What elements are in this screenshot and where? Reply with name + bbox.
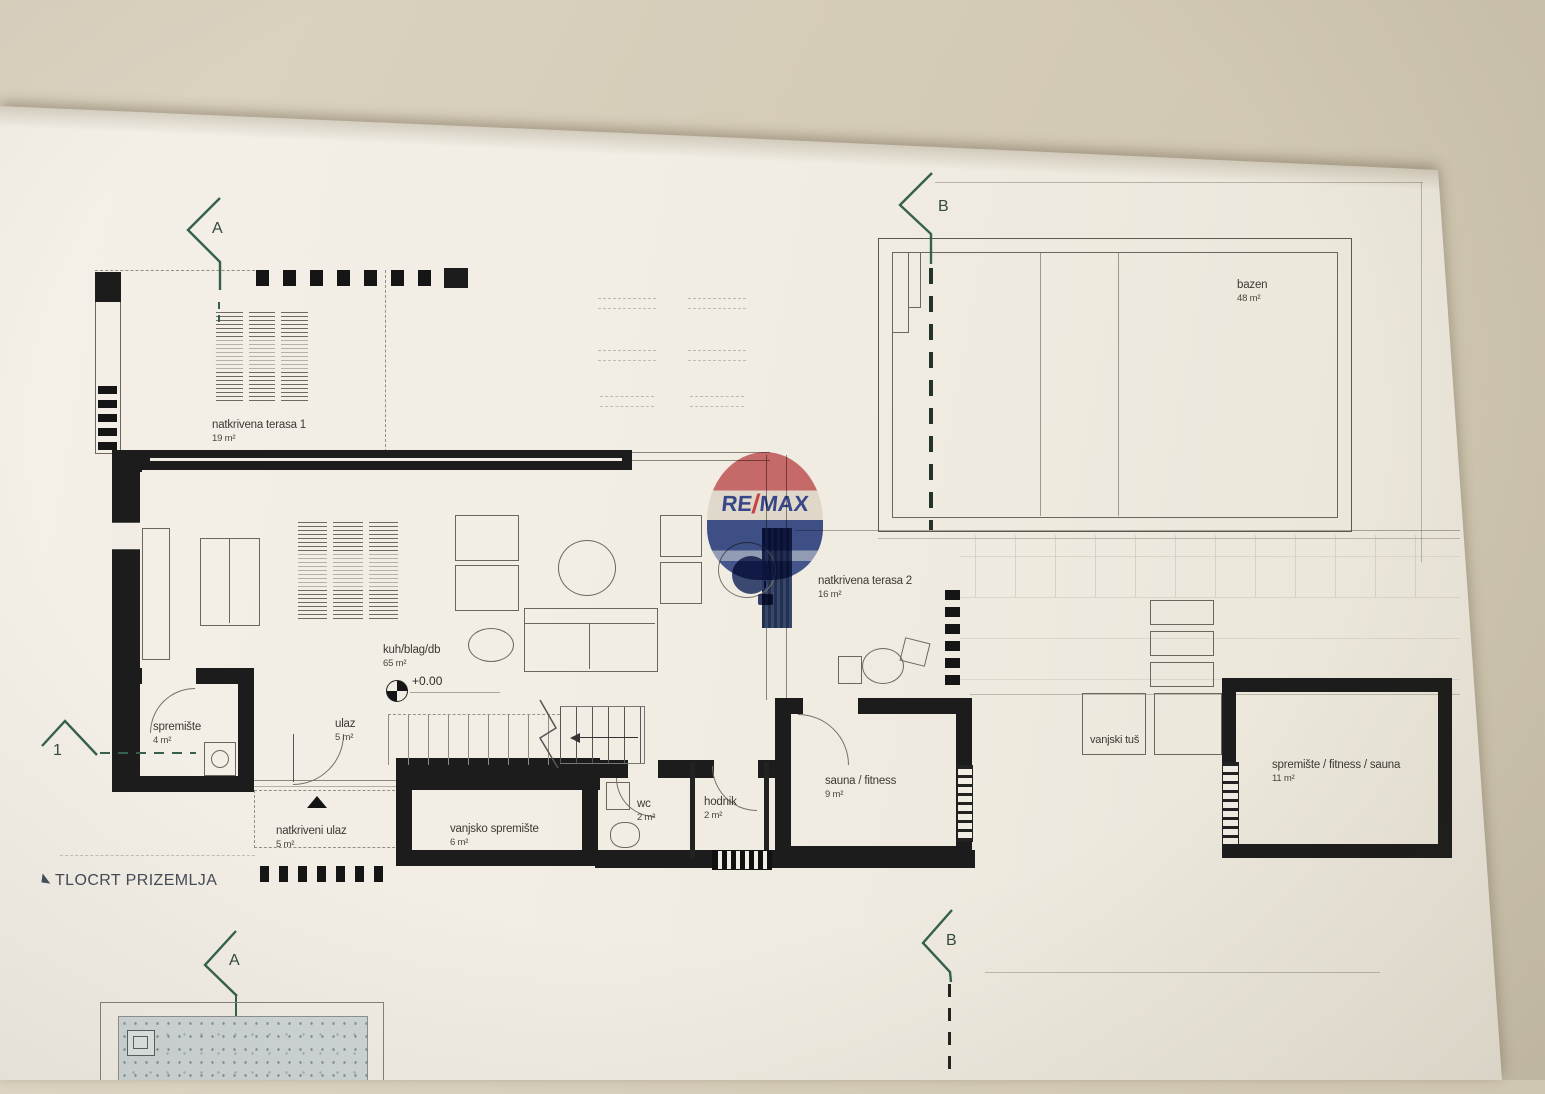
pergola-posts [256, 270, 442, 286]
threshold-line [254, 780, 398, 781]
window-blocks [98, 386, 117, 450]
door-arc [798, 714, 849, 765]
stair-direction-line [578, 737, 638, 738]
room-area: 19 m² [212, 433, 306, 445]
room-label-vanjski-tus: vanjski tuš [1090, 733, 1139, 747]
room-area: 5 m² [276, 839, 347, 851]
roof-projection-dash [688, 298, 746, 309]
site-boundary-line [935, 182, 1423, 183]
site-boundary-line [1421, 182, 1422, 562]
outdoor-table [862, 648, 904, 684]
section-marker-a-top [186, 196, 230, 300]
wall-segment [658, 760, 692, 778]
wall-segment [1222, 678, 1236, 762]
wall-segment [95, 272, 121, 302]
sofa-back-line [525, 623, 655, 624]
coffee-table [558, 540, 616, 596]
room-name: natkrivena terasa 1 [212, 418, 306, 433]
kitchen-counter [142, 528, 170, 660]
elevation-symbol [386, 680, 408, 702]
room-label-wc: wc 2 m² [637, 797, 655, 824]
kitchen-island [200, 538, 260, 626]
room-area: 5 m² [335, 732, 355, 744]
page-title: TLOCRT PRIZEMLJA [55, 872, 217, 890]
wall-segment [1222, 678, 1452, 692]
side-table [660, 515, 702, 557]
section-letter-a: A [212, 220, 223, 238]
dashed-line [60, 855, 255, 856]
pool-inner [892, 252, 1338, 518]
outdoor-chair [838, 656, 862, 684]
room-area: 4 m² [153, 735, 201, 747]
lower-drawing-pool-texture [118, 1016, 368, 1082]
section-line-b [929, 268, 933, 530]
roof-projection-dash [688, 350, 746, 361]
roof-projection-dash [598, 298, 656, 309]
stairs-lower-flight [388, 714, 560, 765]
sofa [524, 608, 658, 672]
room-name: kuh/blag/db [383, 643, 440, 658]
room-name: spremište [153, 720, 201, 735]
room-name: vanjsko spremište [450, 822, 539, 837]
room-area: 48 m² [1237, 293, 1267, 305]
balloon-basket [758, 594, 773, 605]
side-table [660, 562, 702, 604]
room-name: spremište / fitness / sauna [1272, 758, 1400, 773]
wall-segment [775, 698, 791, 862]
remax-wordmark: RE/MAX [705, 489, 824, 520]
room-name: sauna / fitness [825, 774, 896, 789]
roof-projection-dash [600, 396, 654, 407]
pool-divider [1040, 253, 1041, 516]
table-top [212, 338, 312, 372]
room-name: wc [637, 797, 655, 812]
wall-segment [396, 850, 598, 866]
wall-segment [112, 668, 142, 684]
room-label-hodnik: hodnik 2 m² [704, 795, 737, 822]
terrace1-dashed-boundary [95, 270, 255, 271]
window-ladder [957, 765, 973, 842]
wall-segment [858, 698, 972, 714]
partition-wall [764, 762, 769, 858]
washing-machine [204, 742, 236, 776]
outdoor-chair [899, 637, 930, 667]
pergola-corner-post [444, 268, 468, 288]
roof-projection-dash [598, 350, 656, 361]
room-name: natkriveni ulaz [276, 824, 347, 839]
sun-lounger [1150, 631, 1214, 656]
room-area: 2 m² [704, 810, 737, 822]
sun-lounger [1150, 662, 1214, 687]
remax-re: RE [720, 491, 753, 516]
room-area: 2 m² [637, 812, 655, 824]
window-opening [112, 522, 140, 550]
washer-drum [211, 750, 229, 768]
terrace1-dashed-boundary [385, 270, 386, 452]
pouf [468, 628, 514, 662]
armchair [455, 515, 519, 561]
room-label-spremiste: spremište 4 m² [153, 720, 201, 747]
pool-skimmer [127, 1030, 155, 1056]
room-name: bazen [1237, 278, 1267, 293]
paper-sheet: +0.00 A B 1 A B natkrivena terasa 1 19 m… [0, 0, 1545, 1080]
room-label-spremiste2: spremište / fitness / sauna 11 m² [1272, 758, 1400, 785]
room-label-terasa1: natkrivena terasa 1 19 m² [212, 418, 306, 445]
balloon-tether [764, 581, 766, 588]
room-label-terasa2: natkrivena terasa 2 16 m² [818, 574, 912, 601]
stair-arrow-head [570, 733, 580, 743]
elevation-underline [410, 692, 500, 693]
lower-drawing-line [985, 972, 1380, 973]
room-name: vanjski tuš [1090, 733, 1139, 747]
entrance-posts [260, 866, 384, 882]
glazing-line [150, 458, 622, 461]
room-area: 65 m² [383, 658, 440, 670]
column-markers [945, 590, 960, 690]
room-area: 9 m² [825, 789, 896, 801]
section-letter-a: A [229, 952, 240, 970]
section-marker-b-top [896, 170, 940, 270]
room-area: 11 m² [1272, 773, 1400, 785]
section-letter-b: B [946, 932, 957, 950]
window-ladder [1222, 762, 1239, 850]
pool-skimmer-inner [133, 1036, 148, 1049]
paper-sheet-wrap: +0.00 A B 1 A B natkrivena terasa 1 19 m… [0, 0, 1545, 1080]
room-label-vanjsko-spremiste: vanjsko spremište 6 m² [450, 822, 539, 849]
remax-balloon-icon: RE/MAX [707, 452, 823, 580]
island-line [229, 539, 230, 623]
photo-of-floor-plan: { "title": {"label": "TLOCRT PRIZEMLJA"}… [0, 0, 1545, 1080]
wall-segment [112, 468, 140, 792]
room-label-natkriveni-ulaz: natkriveni ulaz 5 m² [276, 824, 347, 851]
armchair [455, 565, 519, 611]
room-name: hodnik [704, 795, 737, 810]
threshold-line [254, 786, 398, 787]
room-label-sauna: sauna / fitness 9 m² [825, 774, 896, 801]
room-area: 6 m² [450, 837, 539, 849]
remax-max: MAX [758, 491, 810, 516]
title-tick-icon [41, 873, 51, 883]
partition-wall [690, 762, 695, 858]
room-area: 16 m² [818, 589, 912, 601]
glazing-header [140, 450, 632, 470]
wall-segment [775, 846, 972, 862]
elevation-value: +0.00 [412, 674, 442, 688]
outdoor-pad [1154, 693, 1222, 755]
room-label-bazen: bazen 48 m² [1237, 278, 1267, 305]
room-label-ulaz: ulaz 5 m² [335, 717, 355, 744]
drain-grate [712, 850, 772, 870]
section-line-a [218, 302, 220, 328]
room-name: ulaz [335, 717, 355, 732]
stair-break-line [538, 698, 568, 770]
dining-table-top [294, 552, 402, 588]
remax-logo: RE/MAX [702, 452, 828, 634]
section-number-1: 1 [53, 742, 62, 760]
wall-segment [112, 776, 254, 792]
roof-projection-dash [690, 396, 744, 407]
section-marker-1 [38, 708, 102, 760]
wall-segment [238, 668, 254, 792]
wall-segment [1438, 678, 1452, 858]
room-label-kuh: kuh/blag/db 65 m² [383, 643, 440, 670]
sofa-cushion-line [589, 623, 590, 669]
wc-toilet [610, 822, 640, 848]
section-letter-b: B [938, 198, 949, 216]
wall-segment [1222, 844, 1452, 858]
sun-lounger [1150, 600, 1214, 625]
room-name: natkrivena terasa 2 [818, 574, 912, 589]
section-line-1 [100, 752, 196, 754]
pool-divider [1118, 253, 1119, 516]
section-line-b [948, 984, 951, 1080]
